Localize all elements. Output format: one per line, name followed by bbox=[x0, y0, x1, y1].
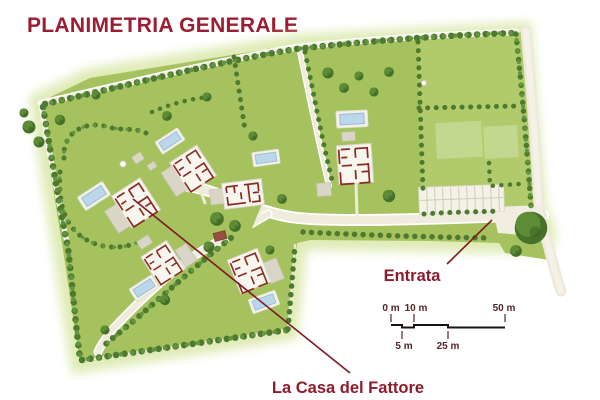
scale-tick-label: 5 m bbox=[395, 341, 412, 352]
scale-tick-label: 10 m bbox=[405, 303, 428, 314]
fountain bbox=[120, 161, 126, 167]
scale-tick-label: 25 m bbox=[437, 341, 460, 352]
entrance-tree bbox=[515, 212, 548, 245]
site-plan-figure: PLANIMETRIA GENERALE bbox=[0, 0, 600, 400]
mown-patches bbox=[435, 121, 519, 159]
site-plan-map: Entrata La Casa del Fattore 0 m 10 m 50 … bbox=[0, 0, 600, 400]
scale-tick-label: 0 m bbox=[382, 303, 399, 314]
scale-tick-label: 50 m bbox=[493, 303, 516, 314]
building-villa bbox=[336, 143, 373, 184]
entrance-label: Entrata bbox=[384, 267, 442, 285]
farmhouse-label: La Casa del Fattore bbox=[272, 379, 424, 397]
scale-bar: 0 m 10 m 50 m 5 m 25 m bbox=[382, 303, 515, 352]
well bbox=[421, 80, 426, 85]
scale-bar-line bbox=[391, 325, 505, 328]
